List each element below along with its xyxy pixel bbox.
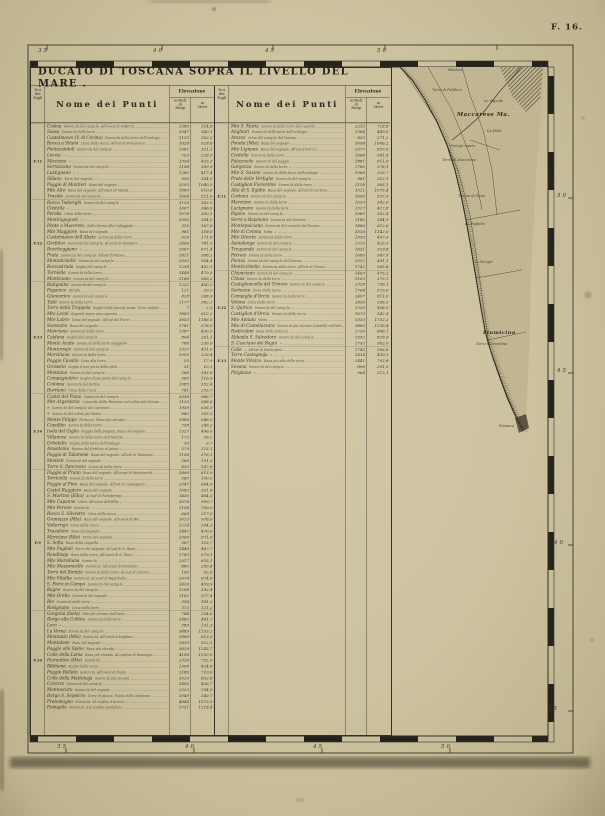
map-toponym: Tenuta di Porto (458, 194, 485, 198)
map-toponym: Torre di Palidoro (432, 88, 462, 92)
map-toponym: Maccarese Ma. (457, 111, 510, 118)
graticule-label: 45 (313, 743, 324, 750)
graticule-label: 40 (554, 539, 565, 546)
map-toponym: La Mola (487, 129, 501, 133)
graticule-label: 35 (548, 705, 559, 712)
map-toponym: Fiumara (499, 424, 514, 428)
graticule-label: 35 (38, 47, 49, 54)
map-toponym: Le Pagliete (465, 222, 485, 226)
graticule-label: 50 (557, 192, 568, 199)
graticule-label: 50 (377, 47, 388, 54)
atlas-sheet: DUCATO DI TOSCANA SOPRA IL LIVELLO DEL M… (0, 0, 605, 816)
map-toponym: S. Giorgio (475, 260, 493, 264)
map-toponym: Torre di Maccarese (442, 158, 476, 162)
map-toponym: Procojo nuovo (450, 144, 475, 148)
map-toponym: Le Vignole (484, 99, 503, 103)
fine-text-overlay: F. 16. 35 40 45 50 35 40 45 50 50 45 40 … (0, 0, 605, 816)
graticule-label: 40 (185, 743, 196, 750)
map-toponym: Palidoro (448, 68, 463, 72)
map-toponym: Fiumicino (483, 330, 516, 336)
graticule-label: 45 (557, 367, 568, 374)
graticule-label: 35 (57, 743, 68, 750)
graticule-label: 45 (265, 47, 276, 54)
map-toponym: Torre Clementina (476, 342, 507, 346)
graticule-label: 40 (153, 47, 164, 54)
graticule-label: 50 (441, 743, 452, 750)
plate-number: F. 16. (551, 22, 583, 32)
